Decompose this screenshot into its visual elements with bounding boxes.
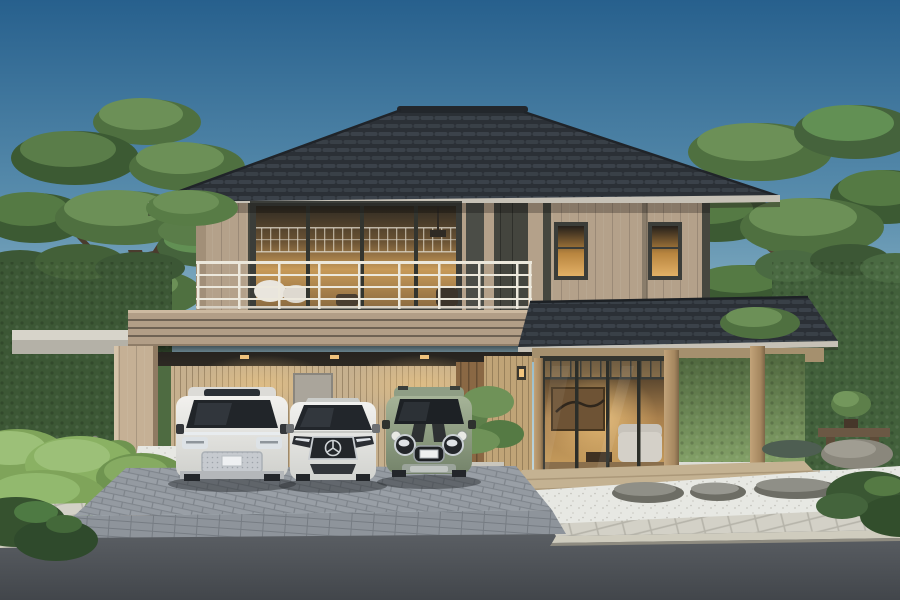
mini-mirror xyxy=(382,420,390,429)
vehicle-van xyxy=(176,387,288,481)
vehicles xyxy=(168,386,481,493)
pendant-lamp xyxy=(430,230,446,237)
porch-open-bays xyxy=(679,354,805,478)
mercedes-mirror xyxy=(286,424,294,433)
mini-license-plate xyxy=(420,450,438,458)
rendered-scene xyxy=(0,0,900,600)
van-license-plate xyxy=(222,456,242,466)
vehicle-mercedes xyxy=(286,398,380,481)
right-wing-window-1 xyxy=(554,222,588,280)
vehicle-mini xyxy=(382,386,476,477)
right-wing-window-2 xyxy=(648,222,682,280)
van-mirror xyxy=(176,424,184,434)
van-sunroof xyxy=(204,389,260,397)
upper-floor-wall xyxy=(196,201,710,312)
van-light-bar xyxy=(184,432,280,435)
scene-stage xyxy=(0,0,900,600)
balcony-windows xyxy=(250,201,462,312)
pond xyxy=(762,440,822,458)
